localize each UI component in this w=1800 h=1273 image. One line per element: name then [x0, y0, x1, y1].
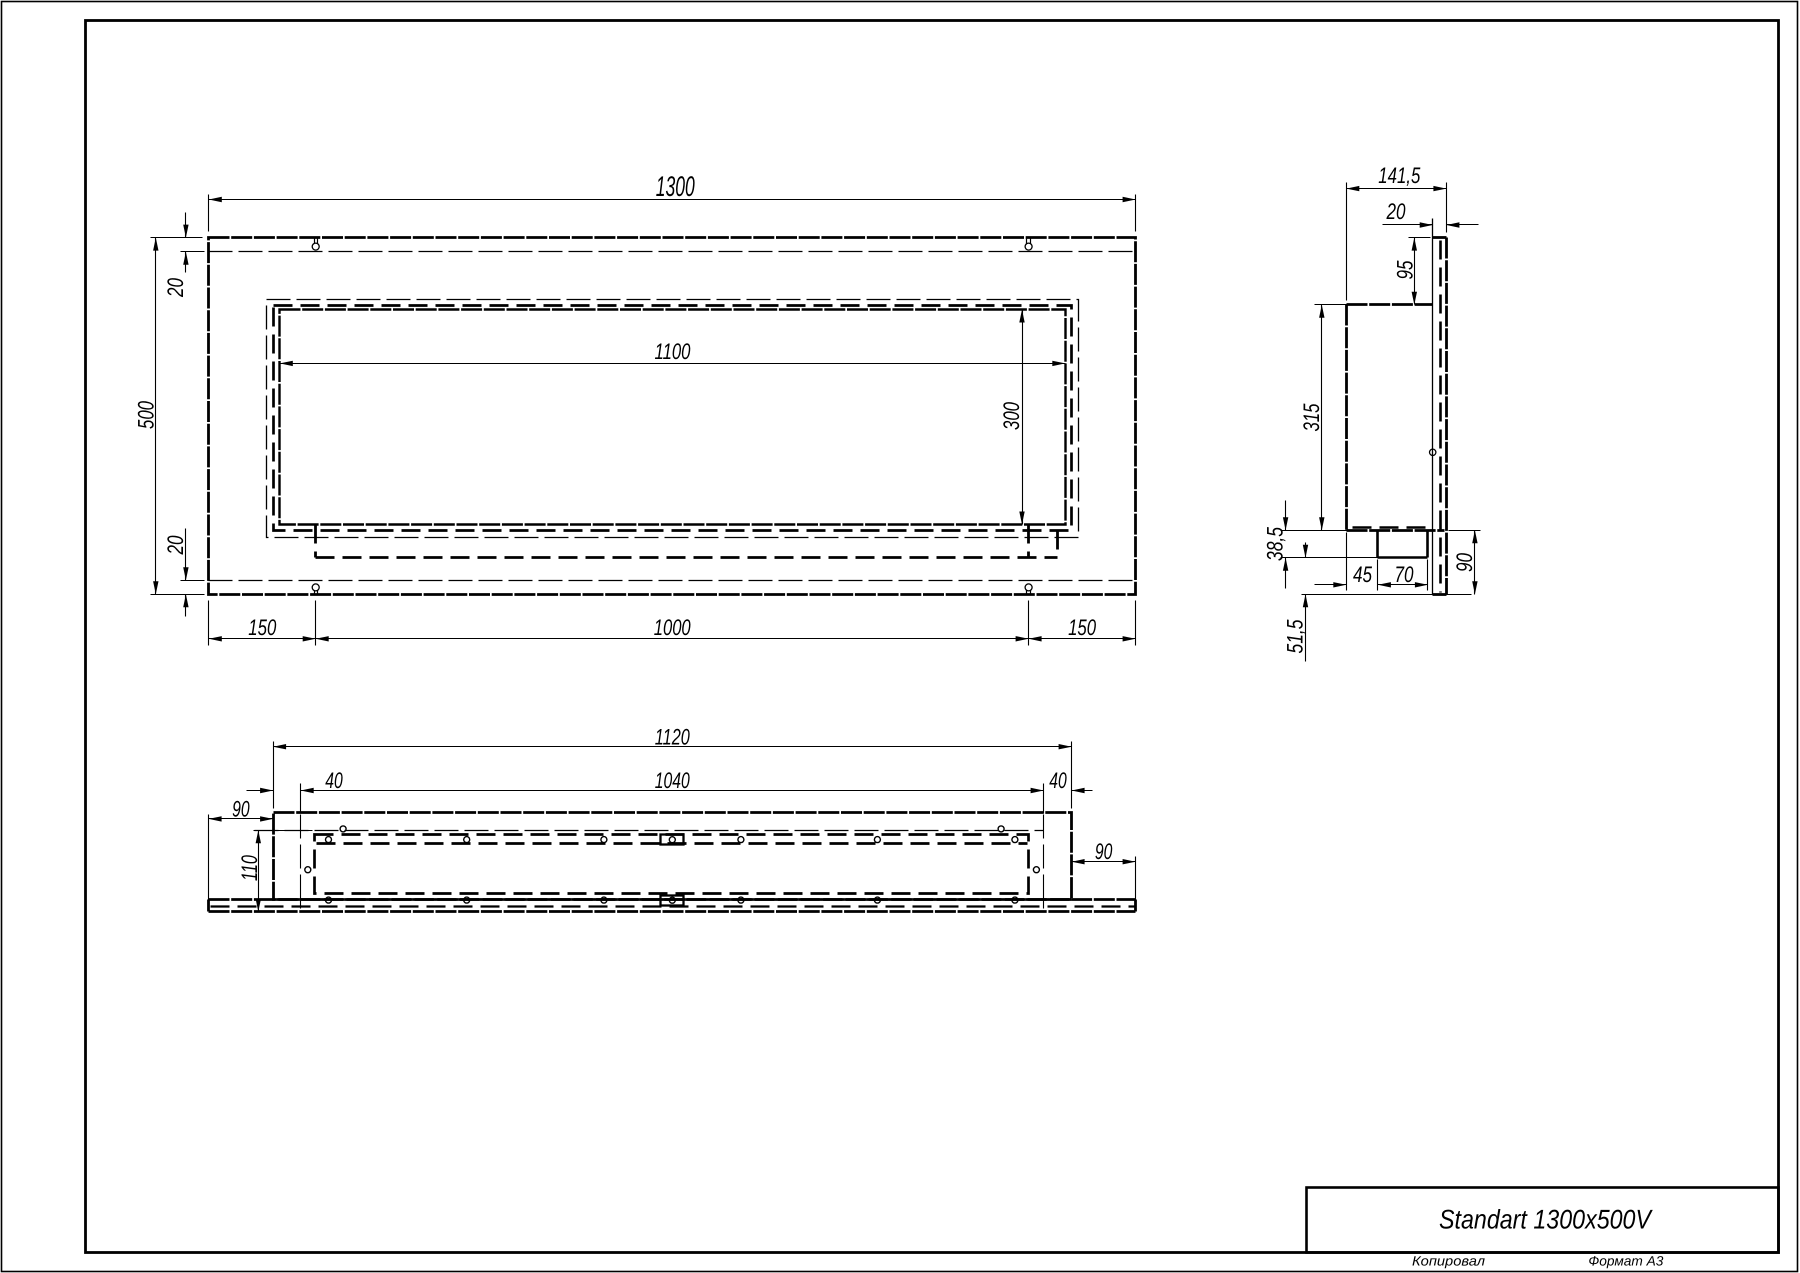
svg-text:20: 20 — [1386, 199, 1406, 224]
svg-text:300: 300 — [999, 402, 1024, 430]
svg-text:40: 40 — [325, 768, 343, 793]
svg-text:150: 150 — [248, 615, 276, 640]
svg-text:1300: 1300 — [656, 171, 695, 203]
svg-text:Standart 1300x500V: Standart 1300x500V — [1439, 1205, 1654, 1235]
svg-text:51,5: 51,5 — [1283, 619, 1308, 653]
svg-text:1000: 1000 — [654, 615, 691, 640]
svg-text:20: 20 — [163, 278, 188, 298]
svg-text:95: 95 — [1392, 260, 1417, 279]
svg-text:1100: 1100 — [655, 339, 691, 364]
svg-text:45: 45 — [1353, 562, 1372, 587]
svg-text:110: 110 — [237, 855, 262, 881]
svg-text:90: 90 — [232, 796, 250, 821]
svg-text:1040: 1040 — [655, 768, 690, 793]
svg-text:Копировал: Копировал — [1412, 1254, 1485, 1269]
svg-text:150: 150 — [1068, 615, 1096, 640]
svg-text:40: 40 — [1049, 768, 1067, 793]
svg-text:90: 90 — [1452, 553, 1477, 572]
svg-text:38,5: 38,5 — [1263, 527, 1288, 561]
svg-text:141,5: 141,5 — [1378, 163, 1420, 188]
svg-text:Формат А3: Формат А3 — [1588, 1254, 1663, 1269]
svg-text:20: 20 — [163, 535, 188, 555]
svg-text:70: 70 — [1395, 562, 1414, 587]
svg-text:90: 90 — [1095, 839, 1113, 864]
svg-text:500: 500 — [133, 401, 158, 429]
svg-text:1120: 1120 — [655, 725, 690, 750]
svg-text:315: 315 — [1299, 403, 1324, 431]
